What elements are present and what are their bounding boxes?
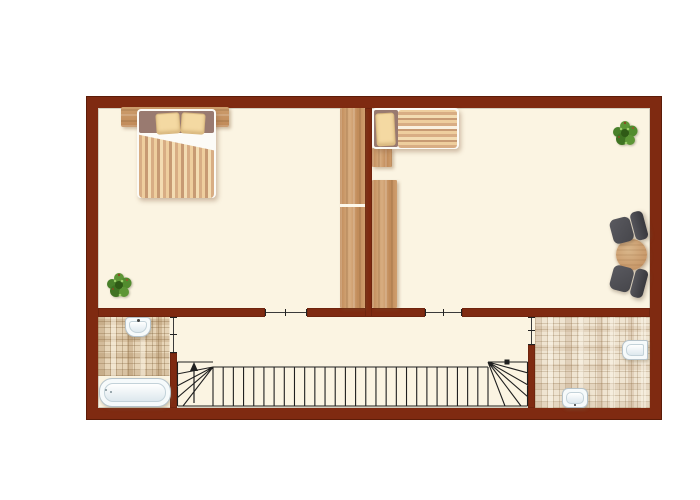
newel-post-marker (505, 360, 510, 365)
single-bed-blanket (398, 110, 457, 148)
bathroom-right-tiles (535, 317, 650, 408)
wash-basin-left (125, 317, 151, 337)
pillow (375, 113, 396, 147)
potted-plant-icon (106, 271, 134, 299)
tall-wardrobe-left-bedroom (340, 108, 365, 308)
wall-bedroom-divider (365, 108, 372, 317)
floor-plan (0, 0, 700, 500)
wall-south-bedroom-right (462, 308, 650, 317)
wall-south-bedroom-left (98, 308, 265, 317)
toilet (562, 388, 588, 408)
bathtub (99, 378, 171, 407)
wardrobe-lower-right-bedroom (372, 180, 397, 308)
staircase (177, 317, 528, 408)
wall-bathroom-right (528, 345, 535, 408)
pillow (155, 112, 180, 135)
wardrobe-upper-right-bedroom (372, 148, 392, 167)
door-bathroom-left (170, 317, 177, 353)
potted-plant-icon (612, 119, 640, 147)
wall-bathroom-left (170, 353, 177, 408)
door-bathroom-right (528, 317, 535, 345)
door-bedroom-left (265, 308, 307, 317)
pillow (180, 112, 205, 135)
blanket-fold (398, 126, 457, 129)
wash-basin-right (622, 340, 648, 360)
door-bedroom-right (425, 308, 462, 317)
